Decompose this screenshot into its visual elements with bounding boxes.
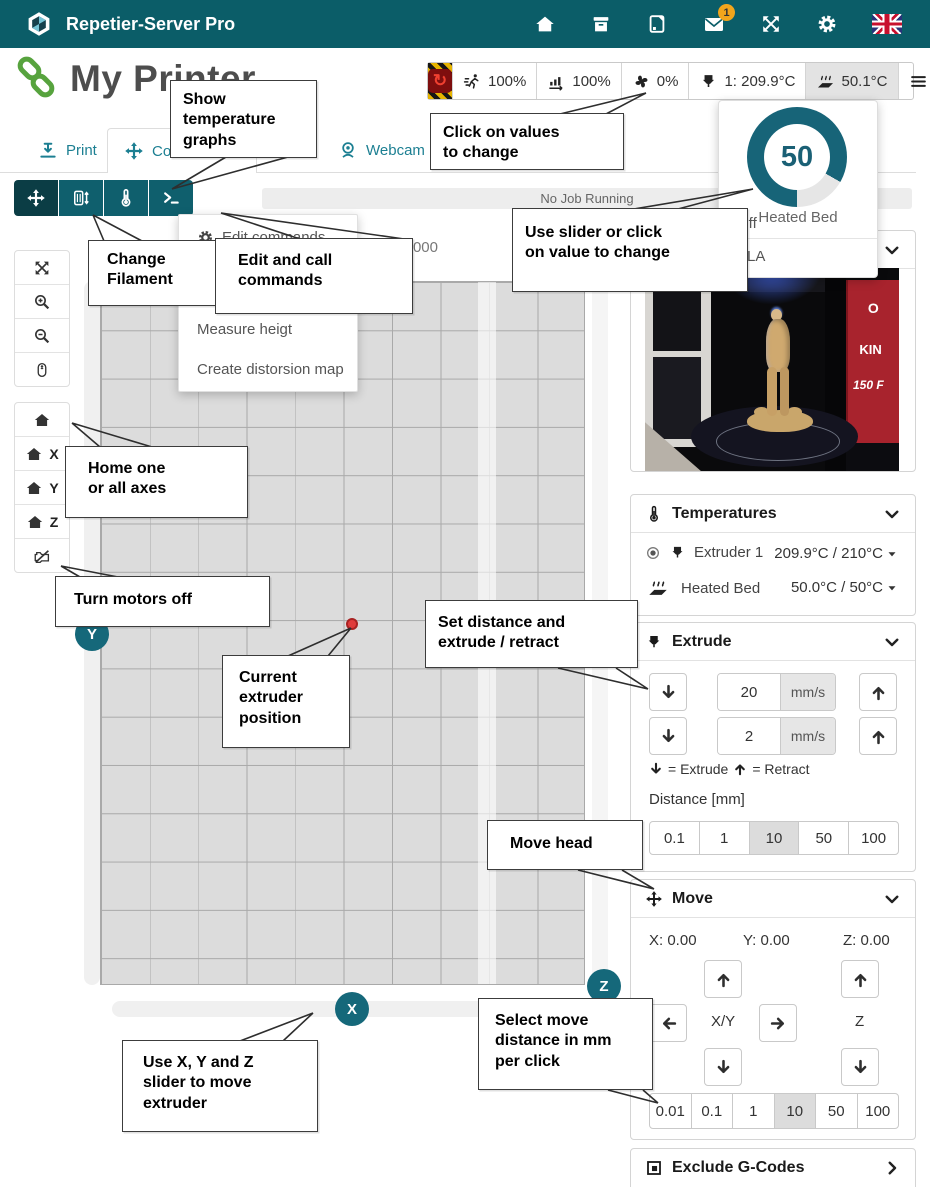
- bed-temp-value: 50.1°C: [841, 73, 887, 90]
- flow-multiplier-button[interactable]: 100%: [536, 63, 620, 99]
- fan-speed-button[interactable]: 0%: [621, 63, 689, 99]
- speed-value: 100%: [488, 73, 526, 90]
- move-distance-100[interactable]: 100: [857, 1094, 899, 1128]
- extruder-icon: [699, 72, 718, 91]
- x-slider-handle[interactable]: X: [335, 992, 369, 1026]
- extrude-speed-unit: mm/s: [780, 674, 835, 710]
- move-y-minus-button[interactable]: [704, 1048, 742, 1086]
- move-cross-icon: [645, 890, 663, 908]
- extrude-fast-button[interactable]: [649, 673, 687, 711]
- extruder-icon: [645, 633, 663, 651]
- hamburger-menu-icon: [909, 72, 928, 91]
- tab-webcam[interactable]: Webcam: [338, 140, 425, 160]
- zoom-out-button[interactable]: [15, 318, 69, 352]
- move-distance-10[interactable]: 10: [774, 1094, 816, 1128]
- move-y-plus-button[interactable]: [704, 960, 742, 998]
- change-filament-button[interactable]: [59, 180, 103, 216]
- printer-link-icon: [12, 54, 60, 102]
- callout-show-temperature-graphs: Show temperature graphs: [170, 80, 317, 158]
- move-tab-icon: [124, 141, 144, 161]
- print-tab-label: Print: [66, 142, 97, 159]
- move-title: Move: [672, 890, 713, 908]
- move-cross-icon: [26, 188, 46, 208]
- speed-icon: [463, 72, 482, 91]
- bed-temp-text: 50.0°C / 50°C: [791, 579, 883, 596]
- arrow-down-icon: [649, 762, 663, 776]
- sign-text: 150 F: [853, 378, 884, 392]
- xy-pad-label: X/Y: [711, 1013, 735, 1030]
- move-panel-header[interactable]: Move: [631, 880, 915, 918]
- x-handle-label: X: [347, 1001, 357, 1018]
- callout-turn-motors-off: Turn motors off: [55, 576, 270, 627]
- y-handle-label: Y: [87, 626, 97, 643]
- extruder-temp-button[interactable]: 1: 209.9°C: [688, 63, 805, 99]
- z-handle-label: Z: [599, 978, 608, 995]
- legend-extrude-text: = Extrude: [668, 761, 728, 777]
- zoom-in-icon: [33, 293, 51, 311]
- callout-edit-and-call-commands: Edit and call commands: [215, 238, 413, 314]
- home-button-group: X Y Z: [14, 402, 70, 573]
- webcam-tab-label: Webcam: [366, 142, 425, 159]
- console-icon: [161, 188, 181, 208]
- z-coordinate: Z: 0.00: [843, 932, 890, 949]
- arrow-down-icon: [852, 1059, 869, 1076]
- speed-multiplier-button[interactable]: 100%: [452, 63, 536, 99]
- flow-icon: [547, 72, 566, 91]
- printer-archive-icon[interactable]: [590, 13, 612, 35]
- extruder-temp-setting[interactable]: 209.9°C / 210°C: [774, 545, 899, 562]
- statue-leg: [780, 367, 790, 416]
- move-z-minus-button[interactable]: [841, 1048, 879, 1086]
- commands-button[interactable]: [149, 180, 193, 216]
- home-icon: [26, 513, 44, 531]
- y-coordinate: Y: 0.00: [743, 932, 790, 949]
- extrude-speed-fast-field: mm/s: [717, 673, 836, 711]
- home-y-label: Y: [49, 480, 58, 496]
- callout-set-distance: Set distance and extrude / retract: [425, 600, 638, 668]
- extrude-panel-header[interactable]: Extrude: [631, 623, 915, 661]
- arrow-down-icon: [715, 1059, 732, 1076]
- dropdown-caret-icon: [885, 547, 899, 561]
- x-coordinate: X: 0.00: [649, 932, 697, 949]
- distance-label: Distance [mm]: [649, 791, 745, 808]
- top-navbar: Repetier-Server Pro 1: [0, 0, 930, 48]
- arrow-up-icon: [733, 762, 747, 776]
- thermometer-icon: [116, 188, 136, 208]
- fan-value: 0%: [657, 73, 679, 90]
- arrow-up-icon: [870, 728, 887, 745]
- app-title: Repetier-Server Pro: [66, 14, 235, 35]
- webcam-tab-icon: [338, 140, 358, 160]
- arrow-down-icon: [660, 728, 677, 745]
- exclude-region-icon: [645, 1159, 663, 1177]
- extruder-temp-row: Extruder 1: [645, 544, 763, 561]
- temperatures-panel: Temperatures Extruder 1 209.9°C / 210°C …: [630, 494, 916, 616]
- callout-current-extruder-position: Current extruder position: [222, 655, 350, 748]
- callout-move-head: Move head: [487, 820, 643, 870]
- z-pad-label: Z: [855, 1013, 864, 1030]
- control-toolbar: [14, 180, 193, 216]
- settings-gear-icon[interactable]: [816, 13, 838, 35]
- dropdown-caret-icon: [885, 581, 899, 595]
- fit-view-button[interactable]: [15, 251, 69, 284]
- move-x-plus-button[interactable]: [759, 1004, 797, 1042]
- webcam-image: O KIN 150 F: [645, 268, 899, 471]
- tab-print[interactable]: Print: [38, 140, 97, 160]
- flow-value: 100%: [572, 73, 610, 90]
- callout-use-slider: Use slider or click on value to change: [512, 208, 748, 292]
- zoom-out-icon: [33, 327, 51, 345]
- arrow-left-icon: [660, 1015, 677, 1032]
- legend-retract-text: = Retract: [752, 761, 809, 777]
- exclude-gcodes-header[interactable]: Exclude G-Codes: [631, 1149, 915, 1186]
- repetier-logo-icon: [26, 11, 52, 37]
- statue-torso: [766, 319, 790, 372]
- chevron-right-icon[interactable]: [883, 1159, 901, 1177]
- thermometer-icon: [645, 505, 663, 523]
- bed-gauge-value: 50: [781, 141, 813, 174]
- exclude-gcodes-panel: Exclude G-Codes: [630, 1148, 916, 1187]
- home-all-button[interactable]: [15, 403, 69, 436]
- chevron-down-icon[interactable]: [883, 505, 901, 523]
- extruder-temp-text: 209.9°C / 210°C: [774, 545, 883, 562]
- extruder-label: Extruder 1: [694, 544, 763, 561]
- motor-off-icon: [33, 547, 51, 565]
- heated-bed-icon: [816, 72, 835, 91]
- move-x-minus-button[interactable]: [649, 1004, 687, 1042]
- heated-bed-icon: [645, 577, 671, 599]
- chevron-down-icon[interactable]: [883, 241, 901, 259]
- retract-slow-button[interactable]: [859, 717, 897, 755]
- expand-icon: [33, 259, 51, 277]
- extruder-icon: [669, 544, 686, 561]
- statue-leg: [767, 367, 777, 416]
- arrow-right-icon: [770, 1015, 787, 1032]
- move-mode-button[interactable]: [14, 180, 58, 216]
- home-z-button[interactable]: Z: [15, 504, 69, 538]
- temperature-graph-button[interactable]: [104, 180, 148, 216]
- mouse-mode-button[interactable]: [15, 352, 69, 386]
- extrude-speed-unit: mm/s: [780, 718, 835, 754]
- temperatures-panel-header[interactable]: Temperatures: [631, 495, 915, 533]
- arrow-up-icon: [870, 684, 887, 701]
- extrude-slow-button[interactable]: [649, 717, 687, 755]
- move-panel: Move X: 0.00 Y: 0.00 Z: 0.00 X/Y Z 0.01 …: [630, 879, 916, 1140]
- chevron-down-icon[interactable]: [883, 890, 901, 908]
- arrow-up-icon: [715, 971, 732, 988]
- tablet-icon[interactable]: [646, 13, 668, 35]
- extrude-distance-1[interactable]: 1: [699, 822, 749, 854]
- extrude-speed-slow-input[interactable]: [718, 718, 780, 754]
- extruder-position-dot: [346, 618, 358, 630]
- move-distance-group: 0.01 0.1 1 10 50 100: [649, 1093, 899, 1129]
- view-button-group: [14, 250, 70, 387]
- move-distance-0.01[interactable]: 0.01: [650, 1094, 691, 1128]
- extrude-title: Extrude: [672, 633, 732, 651]
- exclude-gcodes-title: Exclude G-Codes: [672, 1159, 804, 1177]
- extrude-panel: Extrude mm/s mm/s = Extrude = Retract Di…: [630, 622, 916, 872]
- printer-status-bar: ↻ 100% 100% 0% 1: 209.9°C 50.1°C: [427, 62, 914, 100]
- move-distance-50[interactable]: 50: [815, 1094, 857, 1128]
- extrude-distance-10[interactable]: 10: [749, 822, 799, 854]
- move-z-plus-button[interactable]: [841, 960, 879, 998]
- filament-icon: [71, 188, 91, 208]
- language-flag-uk[interactable]: [872, 14, 902, 34]
- bed-temperature-gauge[interactable]: 50: [747, 107, 847, 207]
- home-x-button[interactable]: X: [15, 436, 69, 470]
- temperatures-title: Temperatures: [672, 505, 777, 523]
- red-sign: O KIN 150 F: [846, 280, 899, 442]
- door-pane: [653, 357, 701, 438]
- chevron-down-icon[interactable]: [883, 633, 901, 651]
- move-distance-1[interactable]: 1: [732, 1094, 774, 1128]
- zoom-in-button[interactable]: [15, 284, 69, 318]
- extrude-speed-fast-input[interactable]: [718, 674, 780, 710]
- callout-home-axes: Home one or all axes: [65, 446, 248, 518]
- job-status-text: No Job Running: [540, 191, 633, 206]
- emergency-stop-button[interactable]: ↻: [428, 63, 452, 99]
- bed-temp-setting[interactable]: 50.0°C / 50°C: [791, 579, 899, 596]
- bed-temp-button[interactable]: 50.1°C: [805, 63, 897, 99]
- extrude-distance-group: 0.1 1 10 50 100: [649, 821, 899, 855]
- emergency-stop-icon: ↻: [433, 71, 447, 91]
- arrow-down-icon: [660, 684, 677, 701]
- print-tab-icon: [38, 140, 58, 160]
- extrude-distance-50[interactable]: 50: [798, 822, 848, 854]
- callout-select-move-distance: Select move distance in mm per click: [478, 998, 653, 1090]
- home-icon: [25, 445, 43, 463]
- home-y-button[interactable]: Y: [15, 470, 69, 504]
- extrude-speed-slow-field: mm/s: [717, 717, 836, 755]
- heated-bed-label: Heated Bed: [681, 580, 760, 597]
- repetier-server-app: Repetier-Server Pro 1 My Printer ↻ 100% …: [0, 0, 930, 1187]
- extrude-legend: = Extrude = Retract: [649, 761, 810, 777]
- home-icon[interactable]: [534, 13, 556, 35]
- sign-text: KIN: [859, 342, 881, 357]
- sign-text: O: [868, 300, 879, 316]
- extrude-distance-0.1[interactable]: 0.1: [650, 822, 699, 854]
- extrude-distance-100[interactable]: 100: [848, 822, 898, 854]
- radio-selected-icon[interactable]: [645, 545, 661, 561]
- move-distance-0.1[interactable]: 0.1: [691, 1094, 733, 1128]
- shadow: [846, 443, 899, 471]
- menu-item-measure-height[interactable]: Measure heigt: [197, 321, 292, 338]
- callout-xyz-slider: Use X, Y and Z slider to move extruder: [122, 1040, 318, 1132]
- home-z-label: Z: [50, 514, 59, 530]
- fan-icon: [632, 72, 651, 91]
- callout-click-on-values: Click on values to change: [430, 113, 624, 170]
- motors-off-button[interactable]: [15, 538, 69, 572]
- message-count-badge: 1: [718, 4, 735, 21]
- printer-menu-button[interactable]: [898, 63, 930, 99]
- messages-icon[interactable]: 1: [702, 12, 726, 36]
- fullscreen-icon[interactable]: [760, 13, 782, 35]
- mouse-icon: [33, 361, 51, 379]
- extruder-temp-value: 1: 209.9°C: [724, 73, 795, 90]
- arrow-up-icon: [852, 971, 869, 988]
- bed-temp-row: Heated Bed: [645, 577, 760, 599]
- home-icon: [25, 479, 43, 497]
- menu-item-distortion-map[interactable]: Create distorsion map: [197, 361, 344, 378]
- retract-fast-button[interactable]: [859, 673, 897, 711]
- home-icon: [33, 411, 51, 429]
- home-x-label: X: [49, 446, 58, 462]
